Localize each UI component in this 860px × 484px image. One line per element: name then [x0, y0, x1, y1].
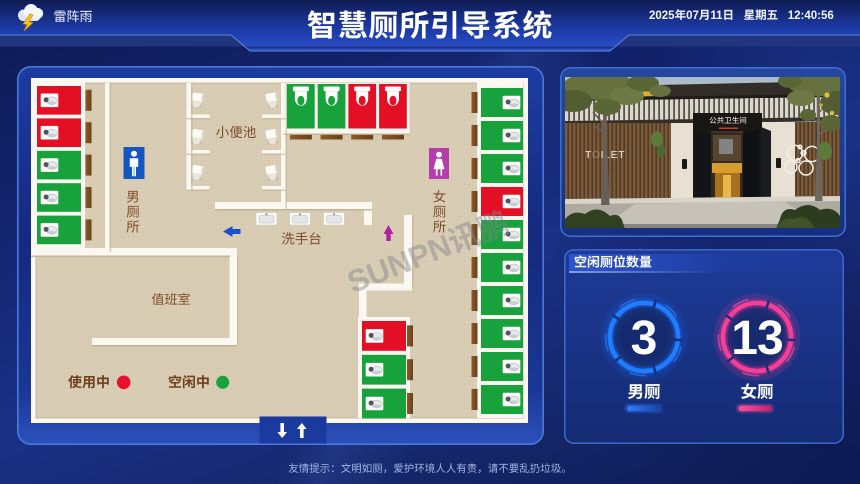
svg-text:小便池: 小便池: [216, 121, 257, 141]
svg-text:值班室: 值班室: [151, 289, 190, 308]
svg-text:雷阵雨: 雷阵雨: [54, 6, 93, 25]
svg-text:空闲厕位数量: 空闲厕位数量: [574, 252, 652, 271]
svg-text:智慧厕所引导系统: 智慧厕所引导系统: [307, 1, 553, 45]
svg-text:所: 所: [126, 216, 140, 236]
svg-text:洗手台: 洗手台: [281, 227, 322, 247]
svg-text:空闲中: 空闲中: [168, 372, 210, 392]
svg-text:2025年07月11日 星期五 12:40:56: 2025年07月11日 星期五 12:40:56: [649, 9, 834, 22]
svg-text:13: 13: [731, 312, 782, 365]
svg-text:公共卫生间: 公共卫生间: [709, 115, 747, 126]
svg-text:3: 3: [631, 312, 658, 365]
svg-text:使用中: 使用中: [68, 372, 110, 392]
svg-text:男厕: 男厕: [628, 379, 661, 403]
svg-text:女厕: 女厕: [741, 379, 774, 403]
